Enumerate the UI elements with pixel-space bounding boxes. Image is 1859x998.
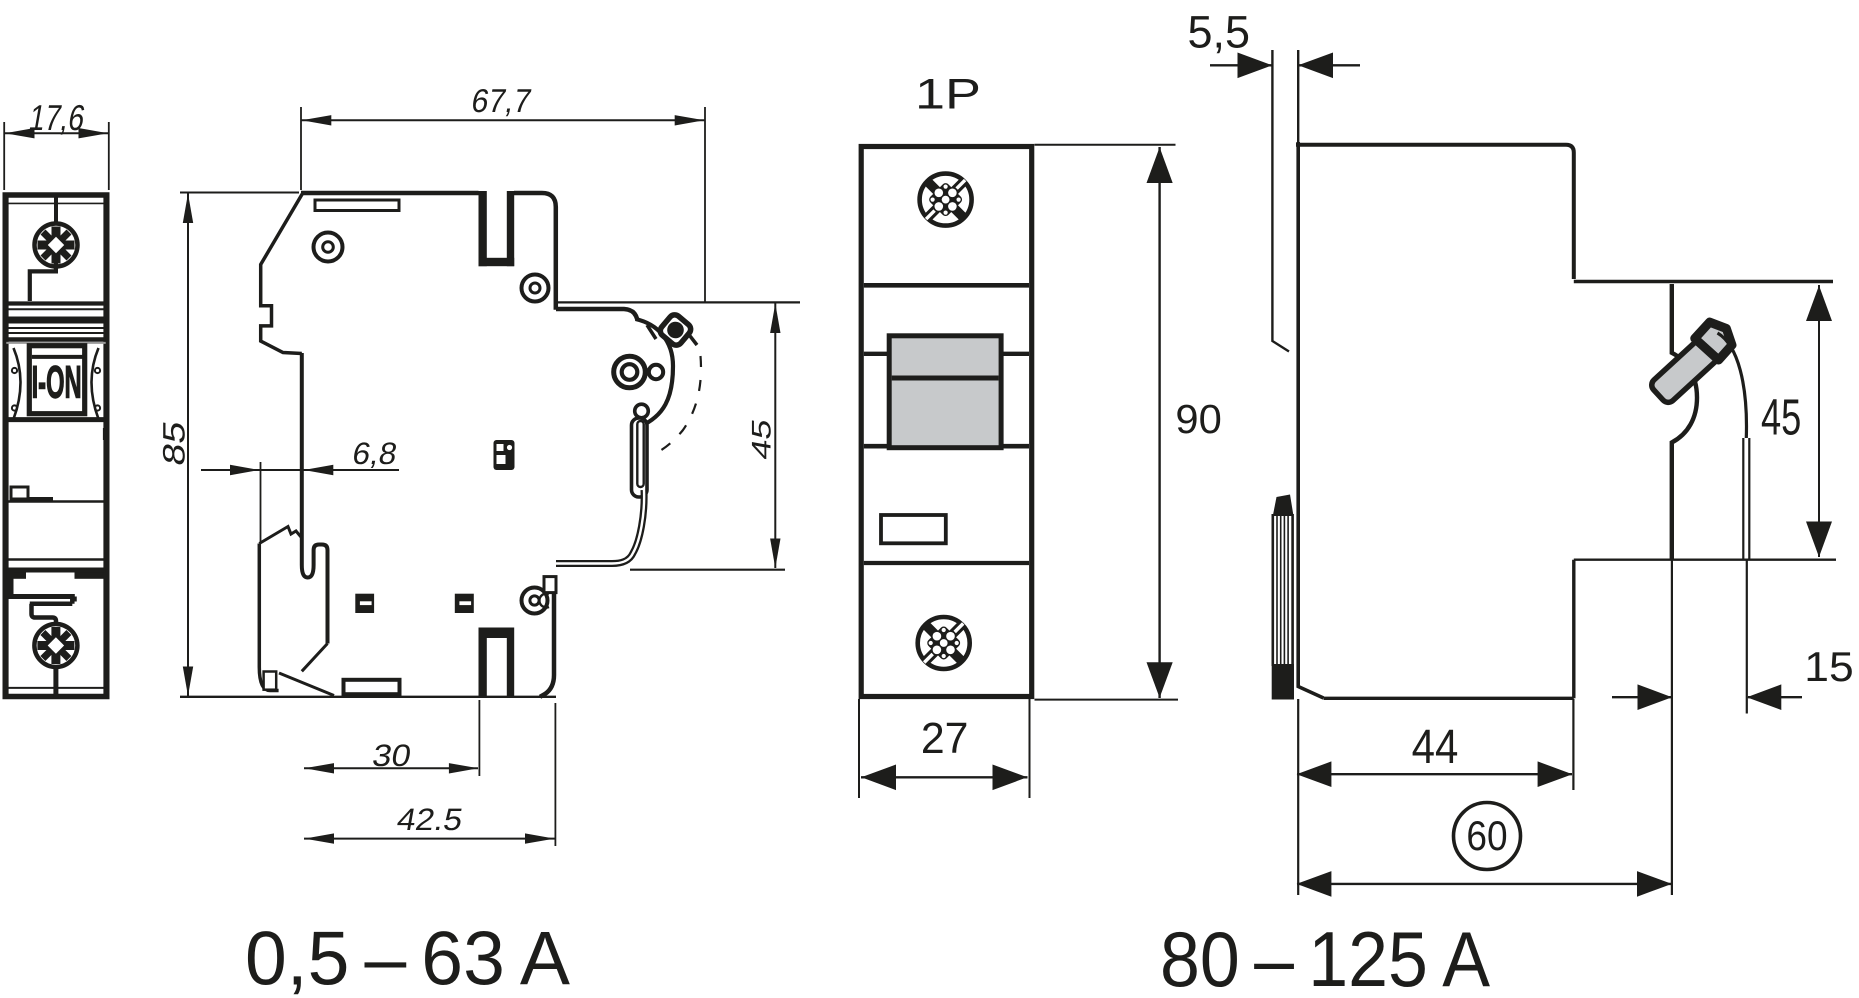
svg-text:90: 90	[1175, 396, 1221, 442]
svg-text:60: 60	[1466, 812, 1507, 859]
svg-text:27: 27	[921, 714, 969, 763]
svg-text:44: 44	[1412, 721, 1459, 774]
svg-text:15: 15	[1804, 643, 1853, 690]
svg-text:5,5: 5,5	[1188, 6, 1251, 57]
svg-text:80 – 125 A: 80 – 125 A	[1160, 915, 1490, 998]
svg-text:85: 85	[157, 418, 192, 468]
svg-text:45: 45	[1761, 389, 1801, 446]
svg-text:42.5: 42.5	[394, 802, 465, 837]
svg-text:1P: 1P	[915, 70, 981, 118]
svg-text:I-ON: I-ON	[32, 357, 82, 408]
svg-text:0,5 – 63 A: 0,5 – 63 A	[245, 917, 570, 998]
svg-text:30: 30	[370, 738, 414, 773]
svg-text:6,8: 6,8	[350, 436, 400, 471]
svg-text:45: 45	[746, 416, 777, 461]
svg-text:67,7: 67,7	[469, 83, 534, 120]
svg-text:17,6: 17,6	[26, 97, 88, 138]
